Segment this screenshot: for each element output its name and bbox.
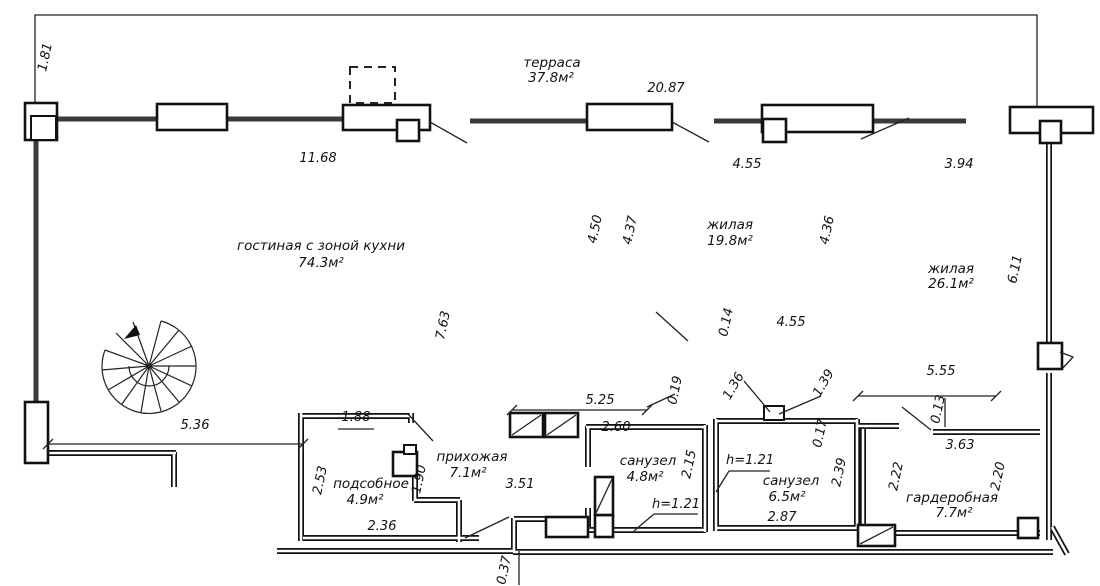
terrace-door-1 [587,104,672,130]
door-swing [902,407,931,430]
dim-0-19: 0.19 [665,375,686,406]
room-area-living-kitchen: 74.3м² [298,255,344,271]
dim-7-63: 7.63 [433,310,454,341]
dim-1-88: 1.88 [342,410,371,425]
dim-5-55: 5.55 [927,364,956,379]
dim-4-36: 4.36 [817,215,838,246]
door-swing [430,122,467,143]
hallway-column-notch [404,445,416,454]
dim-5-36: 5.36 [181,418,210,433]
door-swing [408,414,433,441]
room-label-terrace: терраса [523,55,580,71]
dim-3-51: 3.51 [506,477,535,492]
room-label-bedroom-2: жилая [927,261,974,277]
floor-plan-svg: 1.81 11.68 20.87 4.55 3.94 4.50 4.37 4.3… [0,0,1100,586]
door-swing [672,122,709,142]
window-2-column [397,120,419,141]
dim-3-63: 3.63 [946,438,975,453]
room-area-bathroom-1: 4.8м² [626,469,664,485]
dim-1-39: 1.39 [810,367,837,400]
room-label-bedroom-1: жилая [706,217,753,233]
corner-pier-inner [31,116,56,140]
room-label-hallway: прихожая [437,449,508,465]
dim-h121-b: h=1.21 [726,453,774,468]
dim-h121-a: h=1.21 [652,497,700,512]
shaft-block-lower [595,515,613,537]
door-swing [656,312,688,341]
window-blocks [25,103,1093,538]
dim-2-20: 2.20 [988,461,1009,492]
room-label-wardrobe: гардеробная [906,490,998,506]
dim-11-68: 11.68 [299,151,336,166]
dim-5-25: 5.25 [586,393,615,408]
room-area-utility: 4.9м² [346,492,384,508]
dim-2-22: 2.22 [886,461,907,492]
window-1 [157,104,227,130]
dim-0-37: 0.37 [494,554,515,586]
room-area-bedroom-2: 26.1м² [928,276,974,292]
wardrobe-corner-block [1018,518,1038,538]
exterior-walls [36,119,966,403]
dim-4-37: 4.37 [620,214,641,246]
dim-1-81: 1.81 [35,42,56,73]
floor-plan-page: 1.81 11.68 20.87 4.55 3.94 4.50 4.37 4.3… [0,0,1100,586]
dim-6-11: 6.11 [1005,254,1026,285]
room-label-bathroom-2: санузел [763,473,820,489]
dim-2-60: 2.60 [602,420,631,435]
dim-2-15: 2.15 [679,449,700,480]
room-area-hallway: 7.1м² [449,465,487,481]
room-area-terrace: 37.8м² [528,70,574,86]
dim-4-55-top: 4.55 [733,157,762,172]
room-label-utility: подсобное [333,476,409,492]
room-area-bedroom-1: 19.8м² [707,233,753,249]
room-area-bathroom-2: 6.5м² [768,489,806,505]
dim-2-36: 2.36 [368,519,397,534]
room-area-wardrobe: 7.7м² [935,505,973,521]
dim-0-14: 0.14 [716,307,737,338]
right-wall-column [1038,343,1062,369]
bottom-step-block [546,517,588,537]
dim-3-94: 3.94 [945,157,974,172]
dim-2-87: 2.87 [768,510,798,525]
terrace-door-2-column [763,119,786,142]
dashed-outline [350,67,395,103]
dim-2-53: 2.53 [310,465,331,496]
dim-4-55-bottom: 4.55 [777,315,806,330]
room-label-bathroom-1: санузел [620,453,677,469]
door-swing [465,517,509,538]
left-pier [25,402,48,463]
dim-20-87: 20.87 [647,81,685,96]
dim-4-50: 4.50 [585,214,606,245]
spiral-staircase-icon [102,321,196,413]
room-label-living-kitchen: гостиная с зоной кухни [237,238,405,254]
dim-1-36: 1.36 [720,370,747,403]
dim-0-13: 0.13 [928,394,949,425]
window-3-column [1040,121,1061,143]
dim-2-39: 2.39 [829,457,850,488]
